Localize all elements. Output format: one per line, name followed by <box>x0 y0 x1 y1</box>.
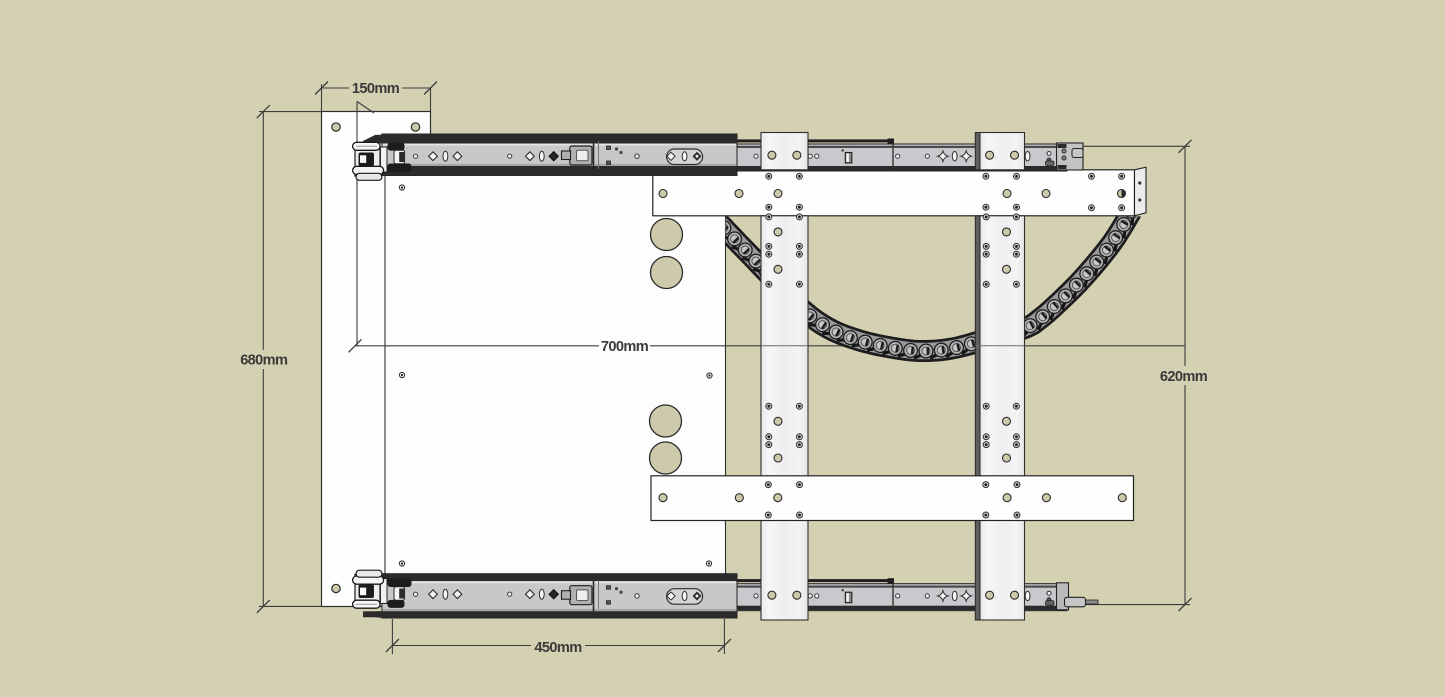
svg-text:620mm: 620mm <box>1160 369 1208 385</box>
svg-text:150mm: 150mm <box>352 81 400 97</box>
svg-text:680mm: 680mm <box>240 353 288 369</box>
svg-text:700mm: 700mm <box>601 339 649 355</box>
svg-text:450mm: 450mm <box>534 640 582 656</box>
